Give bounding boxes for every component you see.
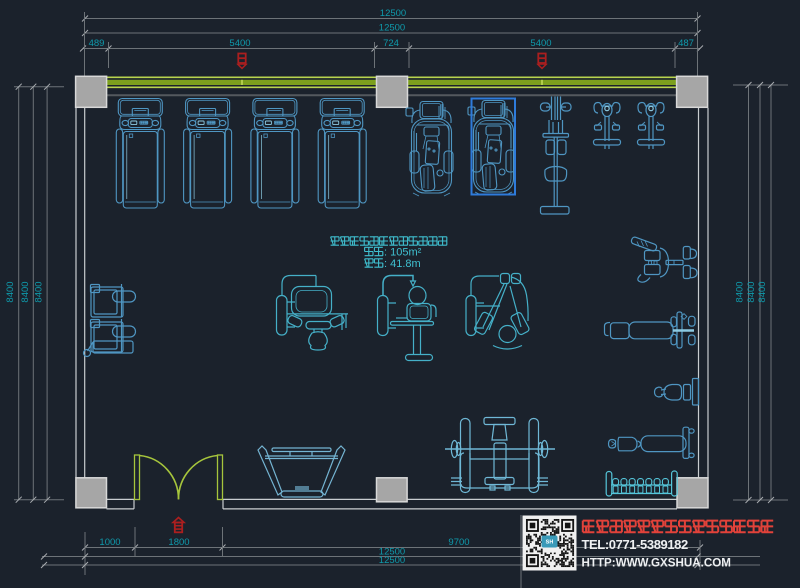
svg-text:: 41.8m: : 41.8m [384,258,421,270]
svg-text:5400: 5400 [530,38,551,49]
svg-text:5400: 5400 [229,38,250,49]
svg-text:1000: 1000 [99,537,120,548]
svg-text:8400: 8400 [746,281,757,302]
svg-text:12500: 12500 [379,23,405,34]
svg-text:8400: 8400 [735,281,746,302]
svg-text:12500: 12500 [380,8,406,19]
svg-text:724: 724 [383,38,399,49]
svg-text:8400: 8400 [757,281,768,302]
svg-text:: 105m²: : 105m² [384,247,422,259]
svg-text:8400: 8400 [34,281,45,302]
svg-text:HTTP:WWW.GXSHUA.COM: HTTP:WWW.GXSHUA.COM [582,557,731,570]
svg-text:1800: 1800 [168,537,189,548]
svg-text:SH: SH [546,540,554,546]
svg-text:TEL:0771-5389182: TEL:0771-5389182 [582,537,689,552]
svg-text:489: 489 [89,38,105,49]
svg-text:9700: 9700 [448,537,469,548]
svg-text:12500: 12500 [379,555,405,566]
svg-text:8400: 8400 [5,281,16,302]
svg-text:487: 487 [678,38,694,49]
svg-text:8400: 8400 [20,281,31,302]
